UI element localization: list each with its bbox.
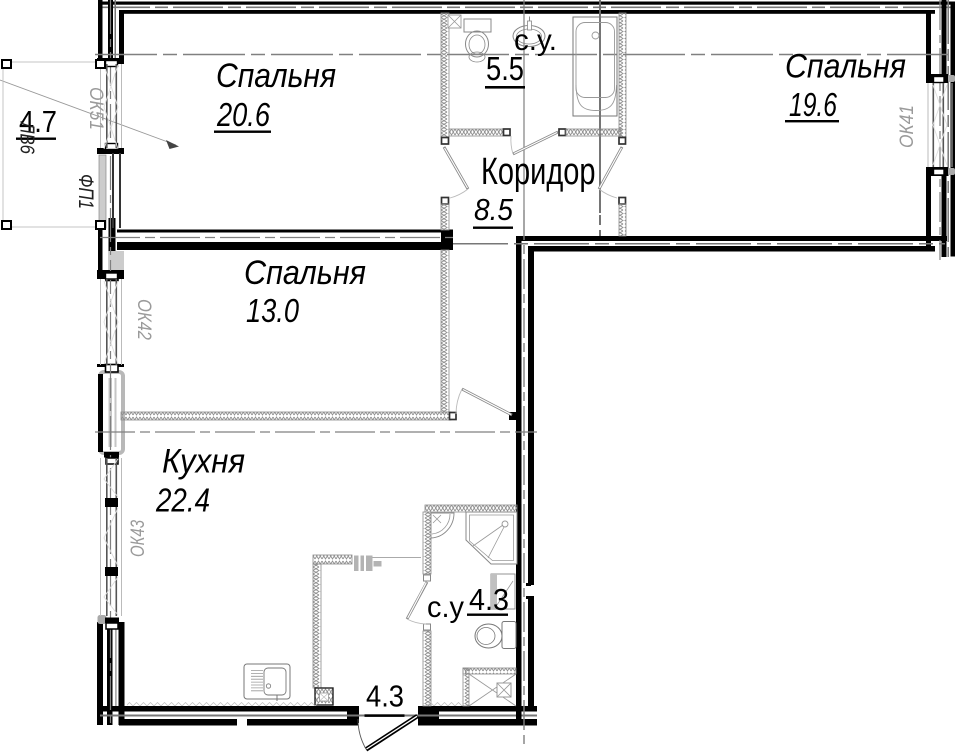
svg-text:ОК41: ОК41 bbox=[897, 105, 918, 148]
svg-text:8.5: 8.5 bbox=[474, 192, 514, 227]
svg-text:ОК43: ОК43 bbox=[128, 520, 149, 557]
svg-text:Спальня: Спальня bbox=[785, 48, 906, 86]
svg-text:Кухня: Кухня bbox=[162, 443, 245, 481]
svg-text:4.3: 4.3 bbox=[469, 582, 509, 617]
svg-text:Спальня: Спальня bbox=[244, 254, 366, 292]
svg-text:22.4: 22.4 bbox=[155, 482, 210, 519]
svg-text:4.3: 4.3 bbox=[366, 679, 404, 714]
svg-text:Спальня: Спальня bbox=[216, 57, 336, 95]
svg-text:Коридор: Коридор bbox=[481, 151, 596, 193]
svg-text:19.6: 19.6 bbox=[789, 86, 837, 123]
svg-text:13.0: 13.0 bbox=[246, 292, 300, 329]
svg-text:с.у: с.у bbox=[427, 591, 464, 624]
svg-text:5.5: 5.5 bbox=[486, 50, 524, 87]
svg-text:ФП1: ФП1 bbox=[74, 174, 97, 209]
svg-text:ОК42: ОК42 bbox=[133, 299, 154, 340]
svg-text:20.6: 20.6 bbox=[216, 96, 270, 133]
svg-text:ОК51: ОК51 bbox=[85, 87, 106, 130]
svg-text:ЛВ6: ЛВ6 bbox=[16, 120, 38, 154]
